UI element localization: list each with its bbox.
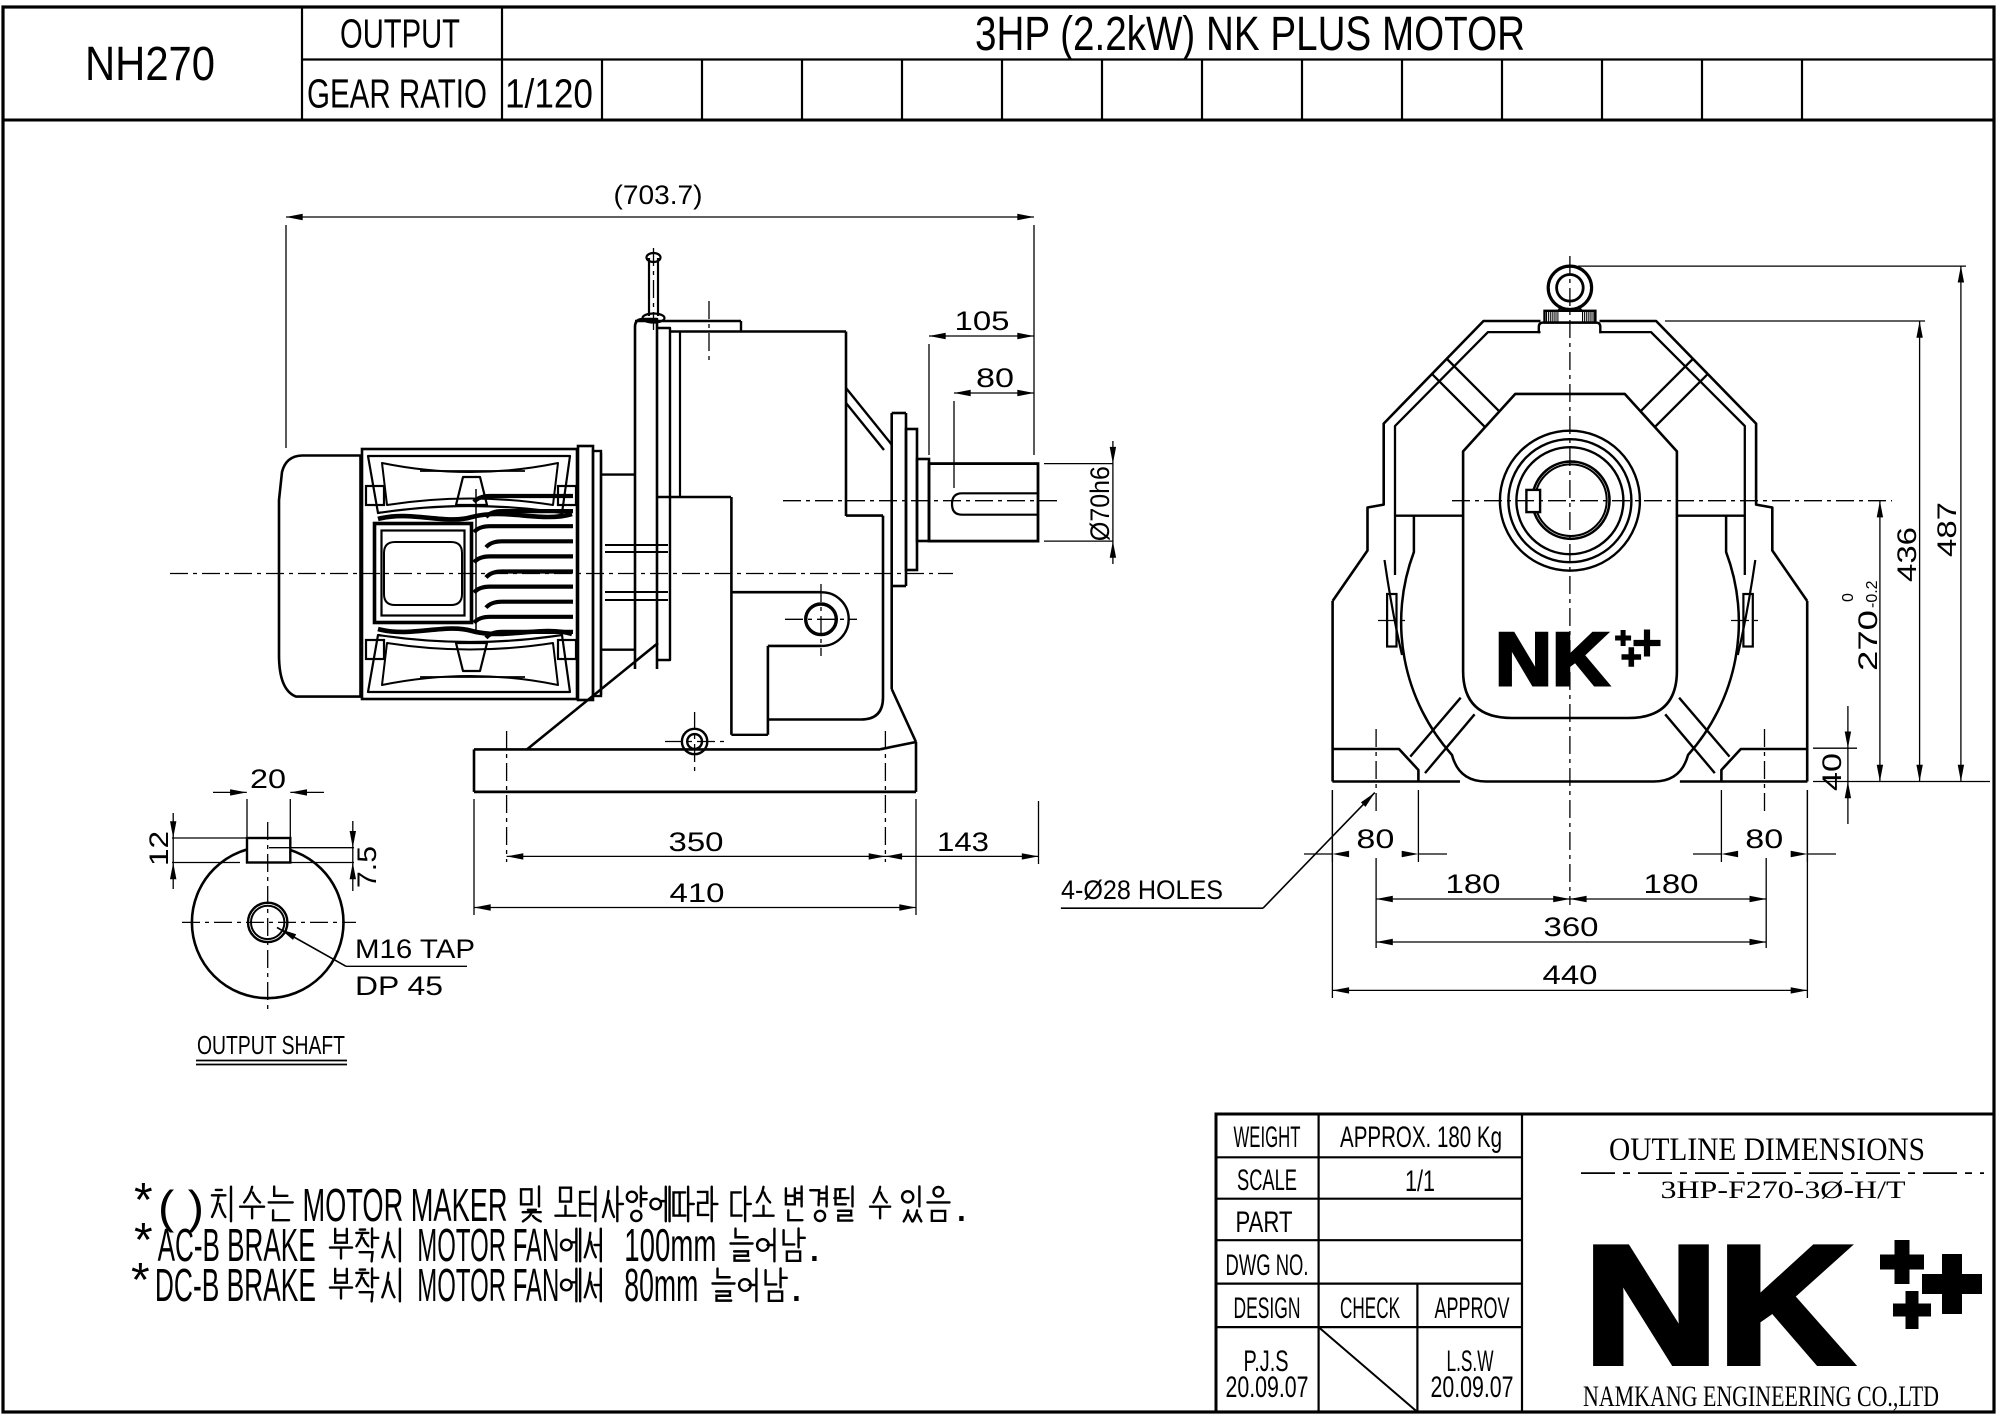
svg-text:3HP-F270-3Ø-H/T: 3HP-F270-3Ø-H/T: [1661, 1177, 1906, 1204]
svg-text:20.09.07: 20.09.07: [1226, 1371, 1309, 1404]
svg-text:1/1: 1/1: [1405, 1165, 1435, 1198]
svg-text:80: 80: [1745, 824, 1783, 854]
svg-text:4-Ø28 HOLES: 4-Ø28 HOLES: [1061, 875, 1223, 905]
svg-text:.: .: [808, 1219, 821, 1271]
svg-text:12: 12: [144, 831, 174, 866]
svg-text:360: 360: [1544, 912, 1599, 942]
svg-text:350: 350: [669, 827, 724, 857]
svg-text:NAMKANG ENGINEERING CO.,LTD: NAMKANG ENGINEERING CO.,LTD: [1583, 1380, 1939, 1413]
svg-text:CHECK: CHECK: [1340, 1292, 1400, 1325]
svg-text:7.5: 7.5: [352, 846, 382, 888]
svg-text:OUTLINE DIMENSIONS: OUTLINE DIMENSIONS: [1609, 1132, 1925, 1168]
svg-text:.: .: [790, 1259, 803, 1311]
svg-text:3HP (2.2kW) NK PLUS MOTOR: 3HP (2.2kW) NK PLUS MOTOR: [975, 8, 1525, 61]
svg-text:20.09.07: 20.09.07: [1431, 1371, 1514, 1404]
svg-text:NK: NK: [1495, 617, 1609, 701]
svg-text:PART: PART: [1236, 1206, 1293, 1239]
svg-text:NH270: NH270: [85, 38, 215, 91]
svg-text:*: *: [131, 1254, 150, 1307]
svg-text:(703.7): (703.7): [614, 180, 703, 210]
svg-text:APPROV: APPROV: [1435, 1292, 1510, 1325]
svg-text:180: 180: [1644, 869, 1699, 899]
svg-text:487: 487: [1932, 502, 1962, 557]
svg-text:OUTPUT SHAFT: OUTPUT SHAFT: [197, 1030, 345, 1060]
svg-text:80: 80: [976, 363, 1014, 393]
svg-text:GEAR RATIO: GEAR RATIO: [307, 71, 487, 117]
svg-text:WEIGHT: WEIGHT: [1234, 1121, 1301, 1154]
svg-text:410: 410: [670, 878, 725, 908]
svg-text:0: 0: [1840, 593, 1857, 602]
svg-text:180: 180: [1446, 869, 1501, 899]
svg-text:.: .: [955, 1179, 968, 1231]
svg-text:143: 143: [937, 827, 989, 857]
svg-text:DWG NO.: DWG NO.: [1226, 1249, 1309, 1282]
svg-text:DESIGN: DESIGN: [1234, 1292, 1301, 1325]
svg-text:40: 40: [1817, 753, 1847, 791]
svg-text:SCALE: SCALE: [1237, 1164, 1297, 1197]
svg-text:80: 80: [1356, 824, 1394, 854]
svg-text:-0.2: -0.2: [1864, 580, 1881, 608]
svg-text:440: 440: [1543, 960, 1598, 990]
svg-text:20: 20: [250, 764, 286, 794]
svg-text:1/120: 1/120: [505, 71, 593, 117]
svg-text:436: 436: [1892, 527, 1922, 582]
svg-text:OUTPUT: OUTPUT: [340, 11, 460, 57]
svg-text:APPROX. 180 Kg: APPROX. 180 Kg: [1340, 1121, 1502, 1154]
svg-text:80mm: 80mm: [624, 1259, 698, 1311]
svg-text:105: 105: [955, 306, 1010, 336]
svg-text:DC-B BRAKE: DC-B BRAKE: [155, 1259, 316, 1311]
svg-text:NK: NK: [1584, 1211, 1852, 1399]
svg-text:Ø70h6: Ø70h6: [1085, 466, 1115, 541]
svg-text:M16 TAP: M16 TAP: [355, 934, 475, 964]
svg-text:MOTOR FAN: MOTOR FAN: [417, 1259, 559, 1311]
svg-text:DP 45: DP 45: [355, 971, 443, 1001]
svg-text:270: 270: [1853, 610, 1883, 671]
